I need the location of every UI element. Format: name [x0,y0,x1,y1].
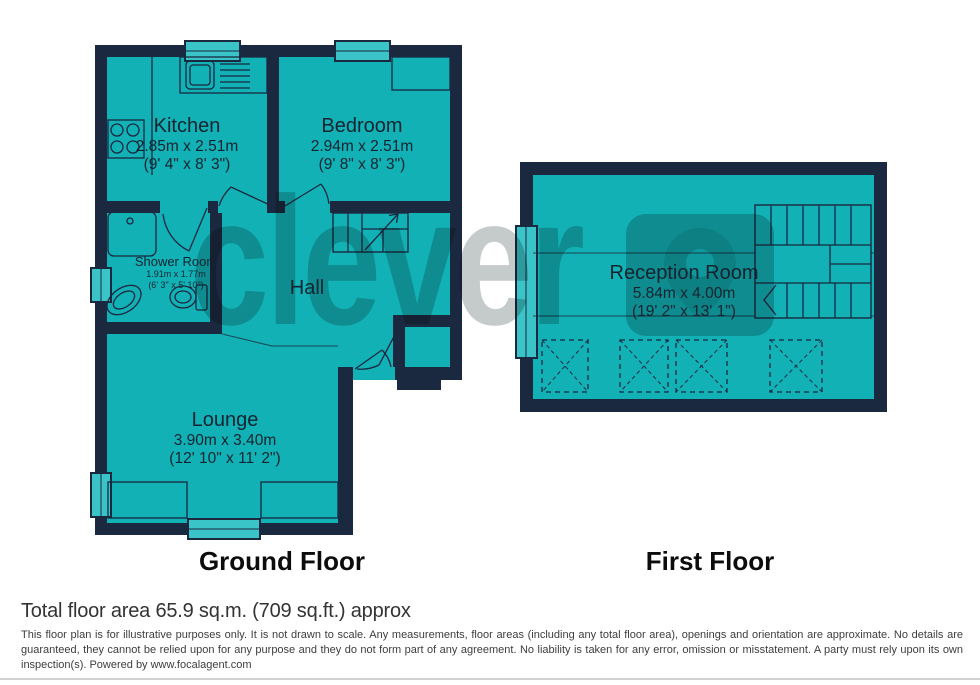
stairs-icon-ground [333,213,408,252]
kitchen-label: Kitchen 2.85m x 2.51m (9' 4" x 8' 3") [136,115,239,174]
bottom-border [0,678,980,680]
reception-window [516,226,537,358]
ground-floor-caption: Ground Floor [199,546,365,577]
total-floor-area: Total floor area 65.9 sq.m. (709 sq.ft.)… [21,600,411,623]
floorplan-page: clever Kitchen 2.85m x 2.51m (9' 4" x 8'… [0,0,980,685]
reception-room-label: Reception Room 5.84m x 4.00m (19' 2" x 1… [610,262,759,321]
front-door-step [397,380,441,390]
lounge-label: Lounge 3.90m x 3.40m (12' 10" x 11' 2") [169,409,280,468]
first-floor-caption: First Floor [646,546,775,577]
shower-room-window [91,268,111,302]
stairs-icon-first [755,205,871,318]
hall-label: Hall [290,277,324,300]
kitchen-window [185,41,240,61]
floorplan-drawing [0,0,980,685]
disclaimer-text: This floor plan is for illustrative purp… [21,628,963,672]
bedroom-window [335,41,390,61]
bedroom-label: Bedroom 2.94m x 2.51m (9' 8" x 8' 3") [311,115,414,174]
shower-room-label: Shower Room 1.91m x 1.77m (6' 3" x 5' 10… [135,254,217,290]
lounge-bottom-window [188,519,260,539]
